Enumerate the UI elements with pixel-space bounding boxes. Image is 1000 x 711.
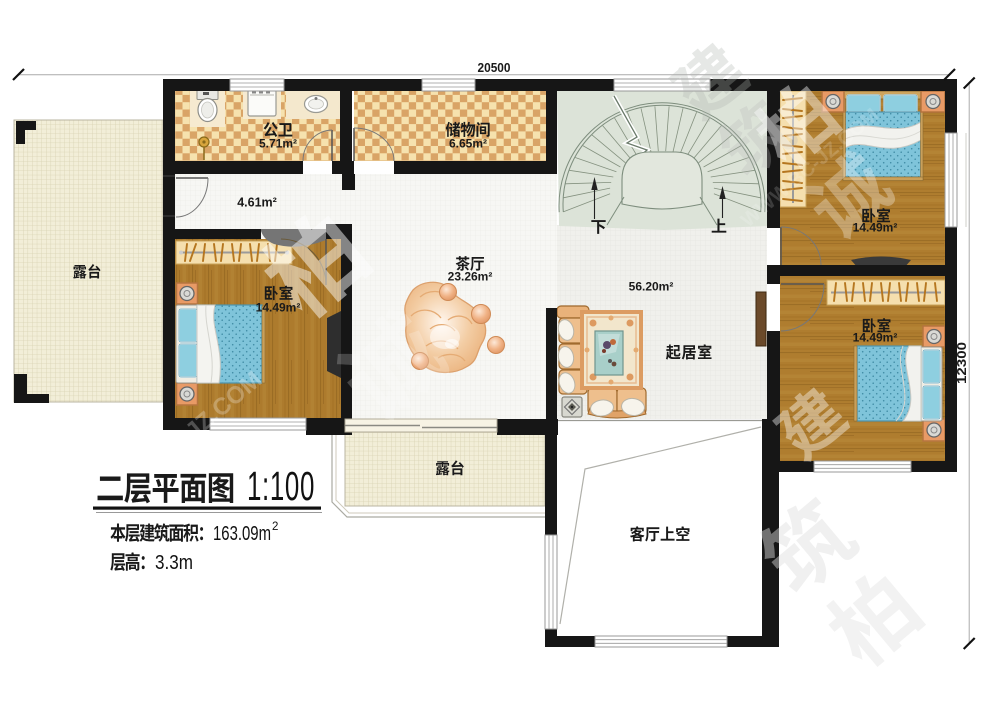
svg-text:20500: 20500 <box>478 61 511 75</box>
svg-text:2: 2 <box>272 521 278 533</box>
svg-text:23.26m²: 23.26m² <box>448 270 493 284</box>
svg-text:163.09m: 163.09m <box>213 523 271 545</box>
svg-text:56.20m²: 56.20m² <box>629 280 674 294</box>
svg-text:14.49m²: 14.49m² <box>853 331 898 345</box>
svg-text:3.3m: 3.3m <box>155 552 193 574</box>
svg-text:4.61m²: 4.61m² <box>237 196 277 210</box>
svg-text:12300: 12300 <box>955 342 969 384</box>
svg-text:14.49m²: 14.49m² <box>853 221 898 235</box>
svg-text:14.49m²: 14.49m² <box>256 301 301 315</box>
svg-text:1:100: 1:100 <box>247 463 315 509</box>
svg-text:5.71m²: 5.71m² <box>259 137 297 151</box>
svg-text:6.65m²: 6.65m² <box>449 137 487 151</box>
